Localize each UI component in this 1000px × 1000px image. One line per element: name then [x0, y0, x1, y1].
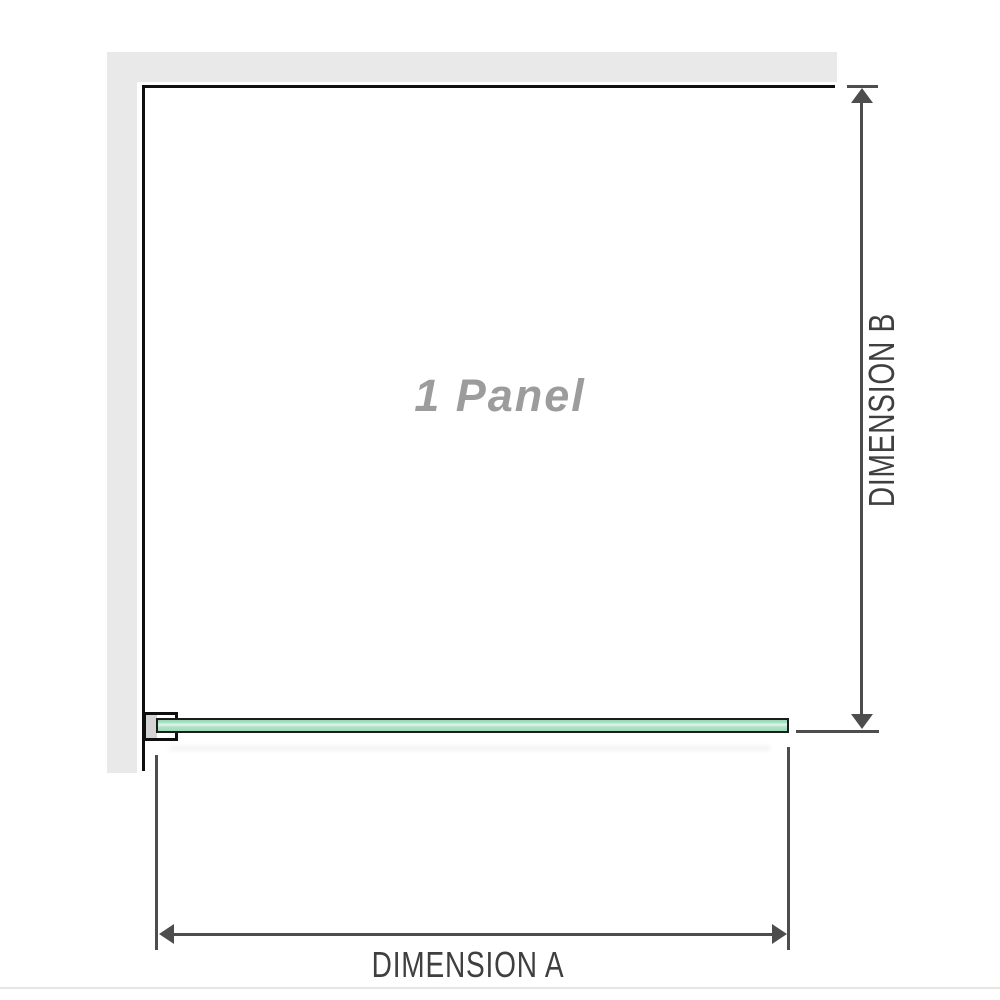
panel-count-label: 1 Panel [414, 370, 586, 422]
dimension-a-left-extension-line [155, 755, 158, 950]
dimension-b-label: DIMENSION B [861, 313, 903, 507]
dimension-a-label: DIMENSION A [372, 944, 565, 986]
wall-left-plan [107, 52, 137, 773]
dimension-a-line [170, 933, 776, 936]
enclosure-outline-left-edge [142, 85, 145, 771]
page-divider [0, 987, 1000, 989]
glass-panel-shadow [170, 746, 770, 751]
enclosure-outline-top-edge [143, 85, 835, 88]
dimension-a-arrow-left-icon [159, 924, 174, 944]
wall-top-plan [107, 52, 837, 82]
glass-panel [156, 718, 789, 733]
dimension-b-arrow-up-icon [851, 88, 873, 103]
dimension-b-arrow-down-icon [851, 714, 873, 729]
shower-panel-dimension-diagram: 1 Panel DIMENSION B DIMENSION A [0, 0, 1000, 1000]
dimension-a-right-extension-line [787, 747, 790, 950]
dimension-b-bottom-tick [796, 730, 879, 733]
dimension-a-arrow-right-icon [772, 924, 787, 944]
